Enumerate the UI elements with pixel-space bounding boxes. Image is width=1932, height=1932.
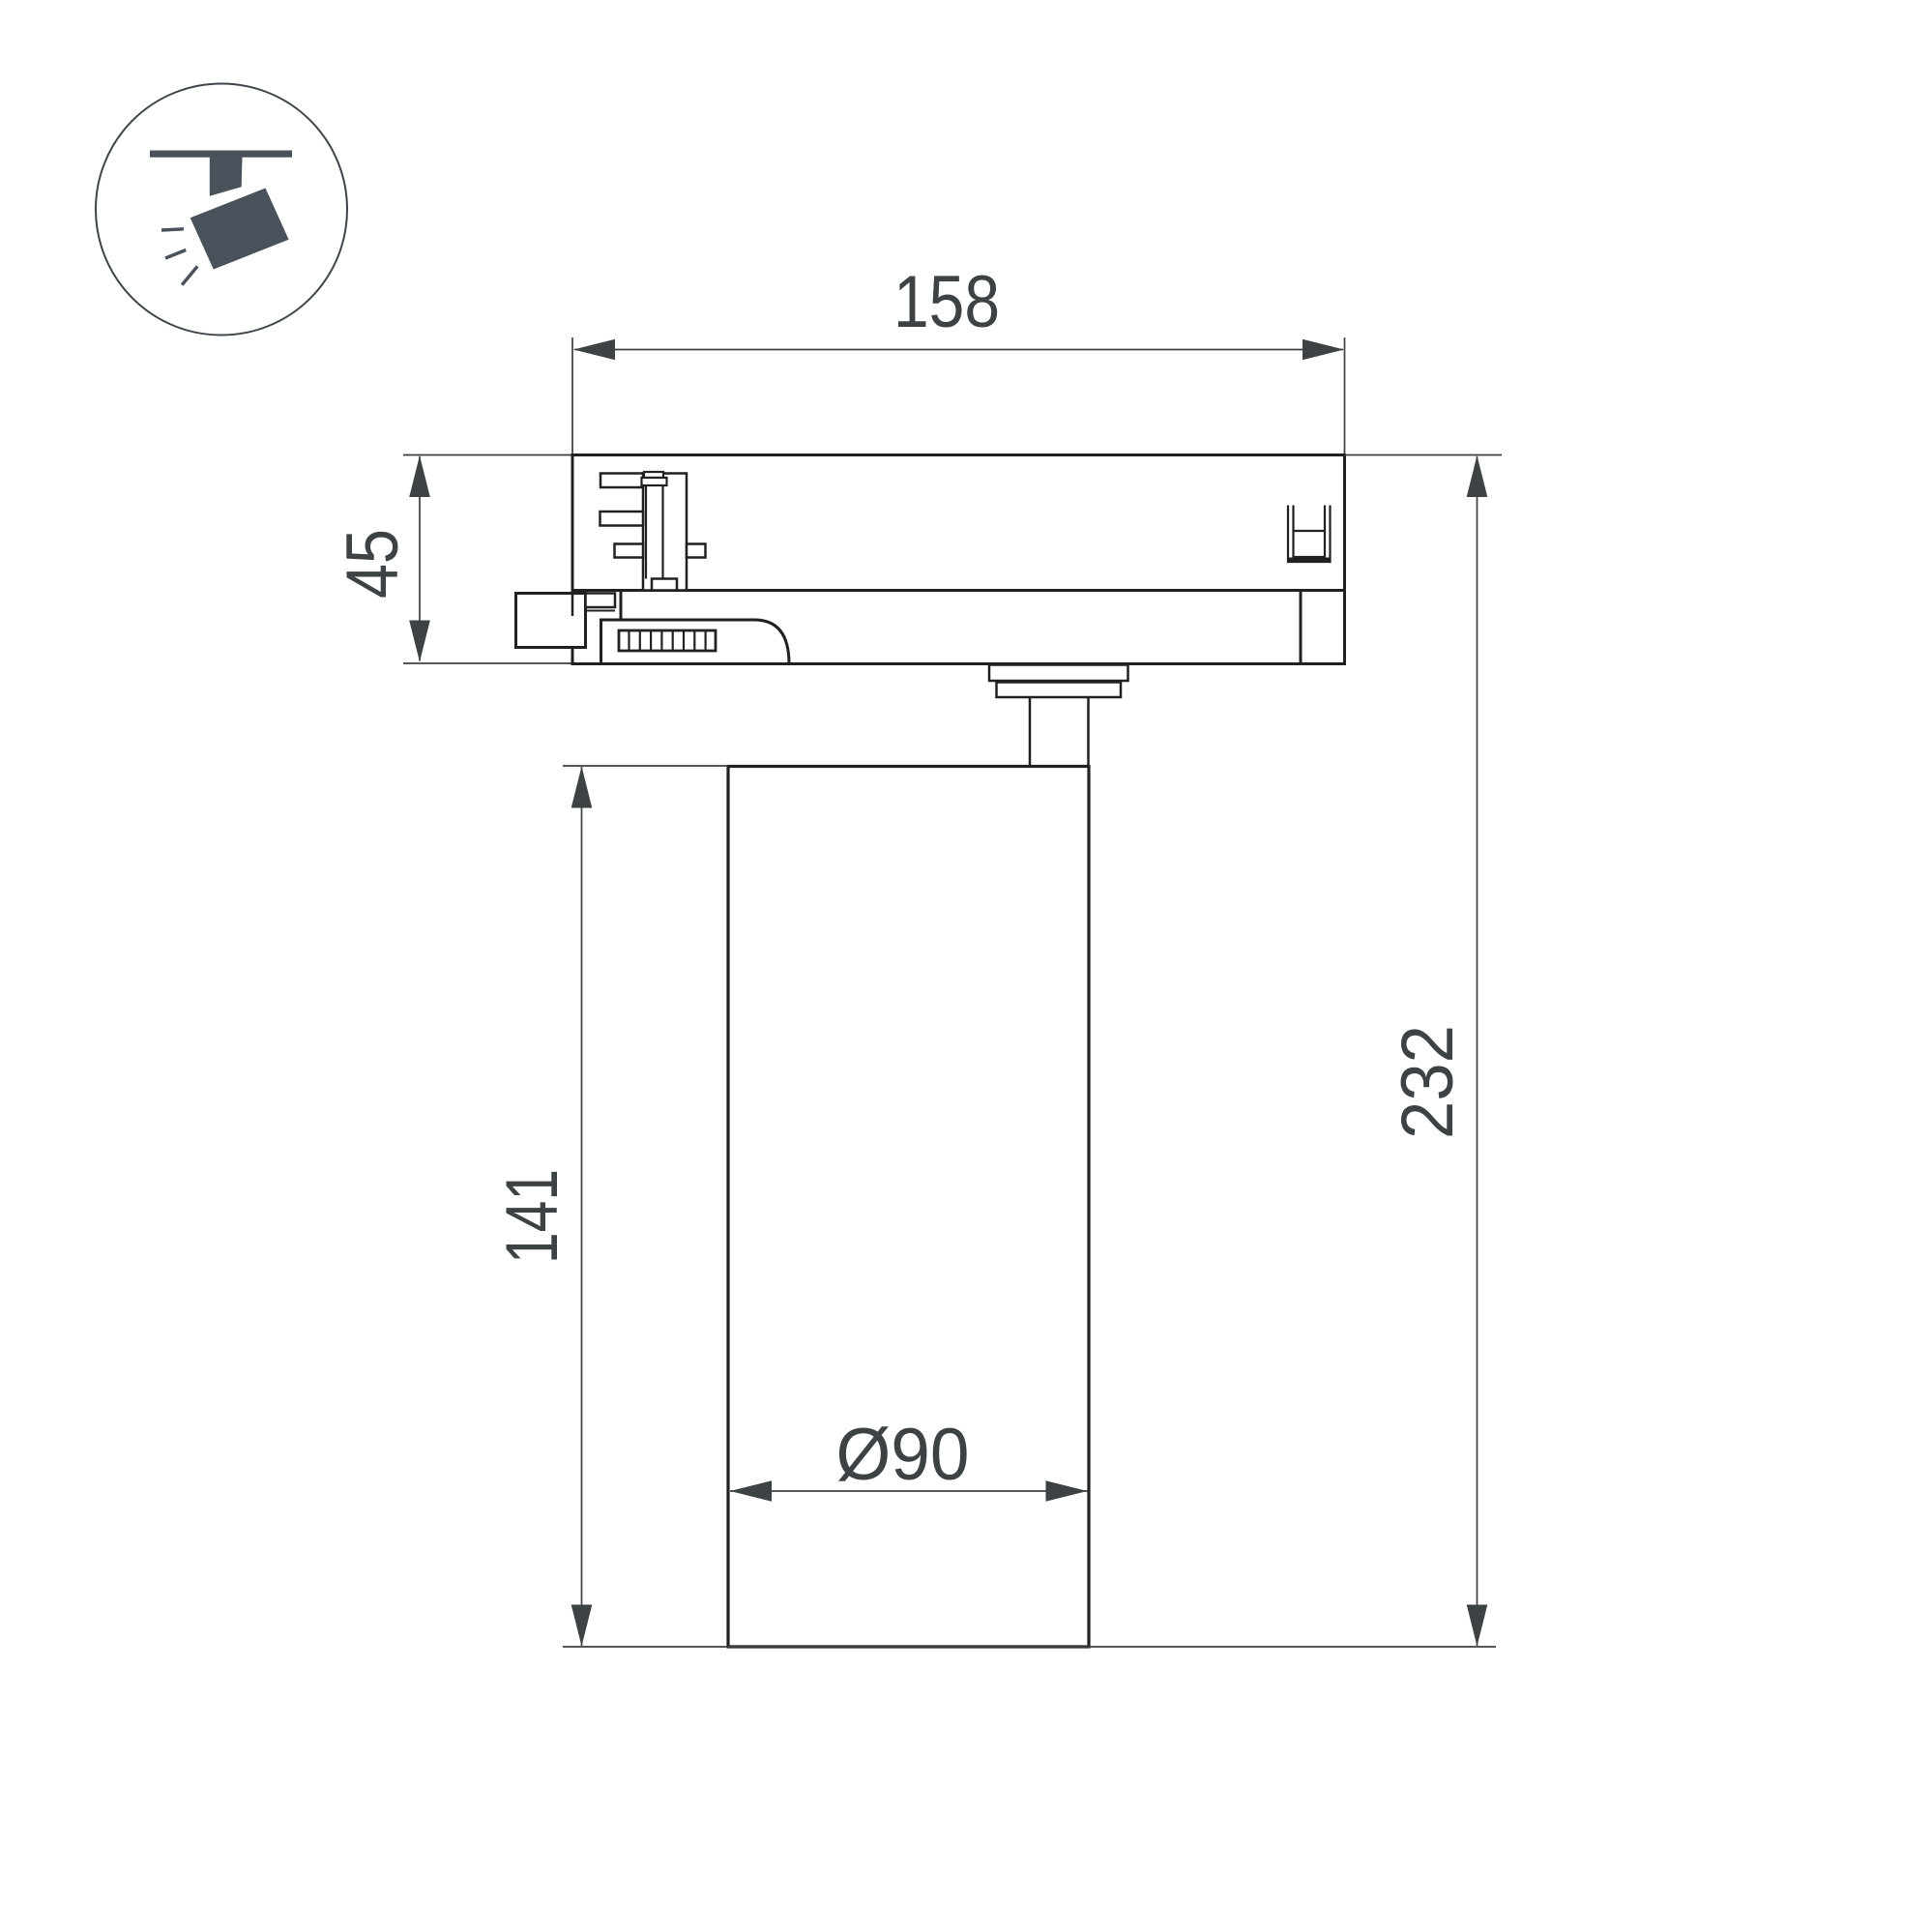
- svg-text:141: 141: [491, 1169, 573, 1264]
- svg-text:232: 232: [1387, 1025, 1469, 1139]
- svg-text:Ø90: Ø90: [836, 1414, 970, 1496]
- svg-text:158: 158: [893, 261, 1000, 343]
- svg-text:45: 45: [332, 529, 414, 599]
